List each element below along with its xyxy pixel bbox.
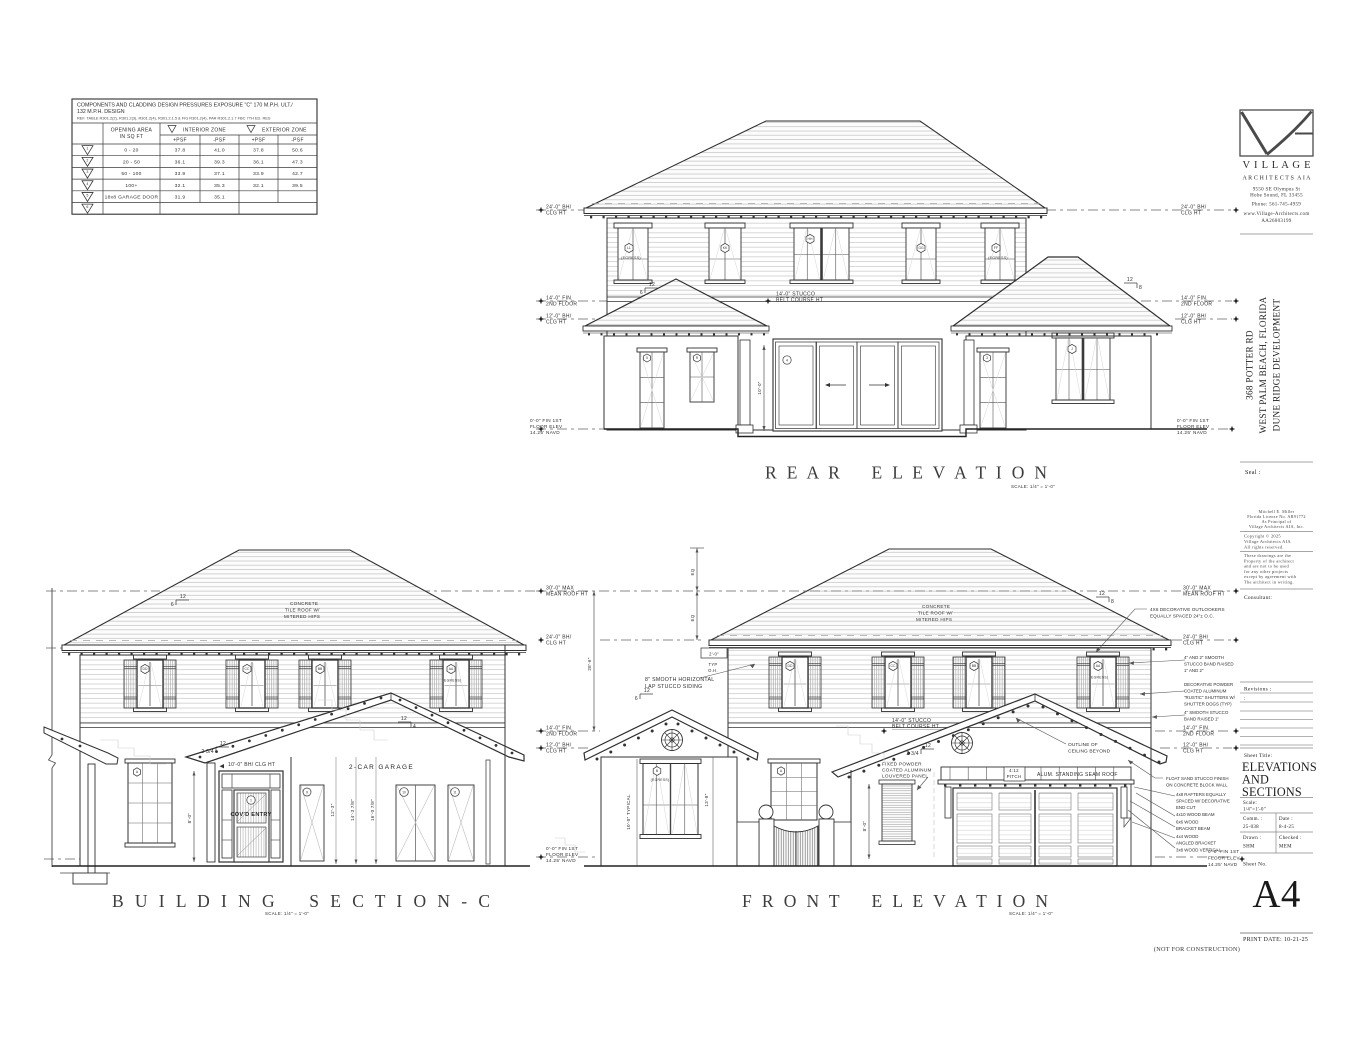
svg-text:CLG HT: CLG HT <box>1183 749 1203 755</box>
svg-text:4: 4 <box>786 358 788 362</box>
svg-text:2'-0": 2'-0" <box>709 652 719 657</box>
svg-text:HH: HH <box>808 237 813 241</box>
svg-text:3: 3 <box>86 170 88 174</box>
svg-text:36.1: 36.1 <box>253 159 264 165</box>
svg-text:CLG HT: CLG HT <box>546 211 566 217</box>
svg-text:14.25' NAVD: 14.25' NAVD <box>1177 430 1207 435</box>
svg-text:CC: CC <box>245 667 250 671</box>
svg-text:PRINT DATE: 10-21-25: PRINT DATE: 10-21-25 <box>1243 937 1308 943</box>
svg-text:0'-0" FIN 1ST: 0'-0" FIN 1ST <box>530 418 562 423</box>
svg-text:0'-0" FIN 1ST: 0'-0" FIN 1ST <box>1177 418 1209 423</box>
svg-text:Seal :: Seal : <box>1245 469 1261 476</box>
svg-text:2ND FLOOR: 2ND FLOOR <box>546 732 577 738</box>
svg-text:6x6 WOOD: 6x6 WOOD <box>1176 820 1198 825</box>
svg-text:CONCRETE: CONCRETE <box>922 604 950 609</box>
svg-text:32.1: 32.1 <box>175 183 186 189</box>
svg-text:FLOOR ELEV: FLOOR ELEV <box>1177 424 1210 429</box>
svg-text:END CUT: END CUT <box>1176 805 1196 810</box>
svg-text:Village Architects AIA: Village Architects AIA <box>1244 539 1291 544</box>
svg-text:FLOOR ELEV: FLOOR ELEV <box>546 852 579 857</box>
svg-text:FLOOR ELEV: FLOOR ELEV <box>1208 856 1240 861</box>
svg-text:32.1: 32.1 <box>253 183 264 189</box>
svg-text:CLG HT: CLG HT <box>1181 320 1201 326</box>
svg-text:9: 9 <box>306 790 308 794</box>
svg-text:+PSF: +PSF <box>252 137 266 143</box>
svg-text:Phone: 561-745-4959: Phone: 561-745-4959 <box>1252 203 1301 208</box>
svg-text:33.9: 33.9 <box>253 171 264 177</box>
svg-text:ALUM. STANDING SEAM ROOF: ALUM. STANDING SEAM ROOF <box>1037 772 1118 778</box>
svg-text:LAP STUCCO SIDING: LAP STUCCO SIDING <box>645 684 702 690</box>
svg-text:STUCCO BAND RAISED: STUCCO BAND RAISED <box>1184 662 1234 667</box>
svg-text:LL: LL <box>627 246 631 250</box>
svg-text:1/4"=1'-0": 1/4"=1'-0" <box>1243 808 1266 813</box>
svg-text:All rights reserved.: All rights reserved. <box>1244 545 1284 550</box>
svg-text:132 M.P.H. DESIGN: 132 M.P.H. DESIGN <box>77 109 125 115</box>
svg-text:0 - 20: 0 - 20 <box>124 148 138 154</box>
svg-text:These drawings are the: These drawings are the <box>1244 553 1291 558</box>
svg-text:35.1: 35.1 <box>214 194 225 200</box>
svg-text:R E A R E L E V A T I O N: R E A R E L E V A T I O N <box>765 463 1047 483</box>
svg-text:and are not to be used: and are not to be used <box>1244 564 1290 569</box>
svg-text:100+: 100+ <box>125 183 137 189</box>
svg-text:EQUALLY SPACED 24”± O.C.: EQUALLY SPACED 24”± O.C. <box>1150 614 1214 619</box>
svg-text:14'-3 7/8": 14'-3 7/8" <box>350 799 355 821</box>
svg-text:WEST PALM BEACH, FLORIDA: WEST PALM BEACH, FLORIDA <box>1258 297 1268 434</box>
svg-text:10: 10 <box>402 790 406 794</box>
svg-text:DUNE RIDGE DEVELOPMENT: DUNE RIDGE DEVELOPMENT <box>1272 299 1282 432</box>
svg-text:Hobe Sound, FL 33455: Hobe Sound, FL 33455 <box>1250 194 1303 199</box>
svg-text:CEILING BEYOND: CEILING BEYOND <box>1068 749 1111 755</box>
svg-text:Sheet No.: Sheet No. <box>1243 862 1267 868</box>
svg-text:BAND RAISED 1": BAND RAISED 1" <box>1184 717 1219 722</box>
svg-text:12: 12 <box>180 594 186 600</box>
svg-text:12: 12 <box>649 282 655 288</box>
svg-text:31.9: 31.9 <box>175 194 186 200</box>
svg-text:DD: DD <box>788 664 793 668</box>
svg-text:12: 12 <box>925 743 931 749</box>
svg-text:50 - 100: 50 - 100 <box>121 171 141 177</box>
svg-text:O.H.: O.H. <box>708 668 718 673</box>
svg-text:2 3/4: 2 3/4 <box>201 749 214 755</box>
svg-text:4x10 WOOD BEAM: 4x10 WOOD BEAM <box>1176 812 1215 817</box>
svg-text:8'-0": 8'-0" <box>862 821 867 832</box>
svg-text:41.0: 41.0 <box>214 148 225 154</box>
svg-text:10'-0": 10'-0" <box>757 381 762 395</box>
svg-text:8'-0": 8'-0" <box>187 813 192 824</box>
svg-text:28'-6": 28'-6" <box>587 657 592 670</box>
svg-text:20 - 50: 20 - 50 <box>123 159 140 165</box>
svg-text:42.7: 42.7 <box>292 171 303 177</box>
svg-text:SCALE: 1/4" = 1'-0": SCALE: 1/4" = 1'-0" <box>265 911 309 916</box>
svg-text:1: 1 <box>250 798 252 802</box>
svg-text:Property of the architect: Property of the architect <box>1244 558 1295 563</box>
svg-text:12: 12 <box>644 688 650 694</box>
svg-text:COV'D ENTRY: COV'D ENTRY <box>230 812 271 818</box>
svg-text:6: 6 <box>171 602 174 608</box>
svg-text:Drawn :: Drawn : <box>1243 836 1261 841</box>
svg-text:18x8 GARAGE DOOR: 18x8 GARAGE DOOR <box>105 194 159 200</box>
svg-text:4" AND 2" SMOOTH: 4" AND 2" SMOOTH <box>1184 655 1224 660</box>
svg-text:13'-8": 13'-8" <box>704 793 709 806</box>
svg-text:CLG HT: CLG HT <box>546 749 566 755</box>
svg-text:4X6 DECORATIVE OUTLOOKERS: 4X6 DECORATIVE OUTLOOKERS <box>1150 607 1225 612</box>
svg-text:MITERED HIPS: MITERED HIPS <box>284 614 320 619</box>
svg-text:CLG HT: CLG HT <box>1181 211 1201 217</box>
svg-text:16'-0 7/8": 16'-0 7/8" <box>370 799 375 821</box>
svg-text:ANGLED BRACKET: ANGLED BRACKET <box>1176 841 1216 846</box>
svg-text:8-4-25: 8-4-25 <box>1279 825 1294 830</box>
svg-text:Consultant:: Consultant: <box>1244 595 1272 601</box>
svg-text:37.8: 37.8 <box>253 148 264 154</box>
svg-text:REF. TABLE R301.2(2), R301.2(3: REF. TABLE R301.2(2), R301.2(3), R301.2(… <box>77 116 271 121</box>
svg-text:TILE ROOF W/: TILE ROOF W/ <box>285 608 320 613</box>
svg-text:5: 5 <box>86 193 88 197</box>
svg-text:BRACKET BEAM: BRACKET BEAM <box>1176 826 1211 831</box>
svg-text:EQ: EQ <box>690 568 695 575</box>
svg-text:for any other projects: for any other projects <box>1244 569 1288 574</box>
svg-text:(EGRESS): (EGRESS) <box>1090 676 1109 680</box>
svg-text:(EGRESS): (EGRESS) <box>988 256 1008 260</box>
svg-text:2 3/4: 2 3/4 <box>906 751 919 757</box>
svg-text:14.25' NAVD: 14.25' NAVD <box>1208 862 1238 867</box>
svg-text:"RUSTIC" SHUTTERS W/: "RUSTIC" SHUTTERS W/ <box>1184 695 1236 700</box>
svg-text:EQ: EQ <box>690 614 695 621</box>
svg-text:25-038: 25-038 <box>1243 825 1259 830</box>
svg-text::: : <box>1244 697 1246 702</box>
svg-text:2ND FLOOR: 2ND FLOOR <box>546 302 577 308</box>
svg-text:J: J <box>1071 347 1073 351</box>
svg-text:6: 6 <box>640 290 643 296</box>
svg-text:SHM: SHM <box>1243 845 1255 850</box>
svg-text:39.3: 39.3 <box>214 159 225 165</box>
svg-text:GG: GG <box>918 246 924 250</box>
svg-text:50.6: 50.6 <box>292 148 303 154</box>
svg-text:1" AND 2": 1" AND 2" <box>1184 668 1204 673</box>
svg-text:12: 12 <box>1127 277 1133 283</box>
svg-text:6: 6 <box>635 696 638 702</box>
svg-text:MEAN ROOF HT: MEAN ROOF HT <box>546 592 588 598</box>
svg-text:3x8 WOOD VERTICAL: 3x8 WOOD VERTICAL <box>1176 848 1222 853</box>
svg-text:4:12: 4:12 <box>1009 768 1019 773</box>
svg-text:1: 1 <box>86 147 88 151</box>
svg-text:0'-0" FIN 1ST: 0'-0" FIN 1ST <box>546 846 578 851</box>
svg-text:10'-0" BH/ CLG HT: 10'-0" BH/ CLG HT <box>228 762 275 768</box>
svg-text:BB: BB <box>318 667 323 671</box>
svg-text:SPACED W/ DECORATIVE: SPACED W/ DECORATIVE <box>1176 799 1230 804</box>
svg-text:Sheet Title:: Sheet Title: <box>1244 753 1273 759</box>
svg-text:Copyright © 2025: Copyright © 2025 <box>1244 534 1281 539</box>
svg-text:AA: AA <box>1096 664 1101 668</box>
svg-text:36.1: 36.1 <box>175 159 186 165</box>
svg-text:CLG HT: CLG HT <box>546 641 566 647</box>
svg-text:AA: AA <box>449 667 454 671</box>
svg-text:LOUVERED PANEL: LOUVERED PANEL <box>882 774 928 779</box>
svg-text:47.3: 47.3 <box>292 159 303 165</box>
svg-text:8: 8 <box>1139 285 1142 291</box>
svg-text:12: 12 <box>220 741 226 747</box>
svg-text:12: 12 <box>1099 591 1105 597</box>
svg-text:MEM: MEM <box>1279 845 1292 850</box>
svg-text:COATED ALUMINUM: COATED ALUMINUM <box>882 768 932 773</box>
svg-text:4x4 WOOD: 4x4 WOOD <box>1176 834 1198 839</box>
svg-text:(EGRESS): (EGRESS) <box>651 778 670 782</box>
svg-text:CC: CC <box>891 664 896 668</box>
svg-text:12: 12 <box>401 716 407 722</box>
svg-text:FF: FF <box>994 246 998 250</box>
svg-text:EXTERIOR ZONE: EXTERIOR ZONE <box>262 128 307 134</box>
svg-text:(EGRESS): (EGRESS) <box>443 679 462 683</box>
svg-text:4x8 RAFTERS EQUALLY: 4x8 RAFTERS EQUALLY <box>1176 792 1226 797</box>
svg-text:2: 2 <box>86 158 88 162</box>
svg-text:6: 6 <box>86 205 88 209</box>
svg-text:OPENING AREA: OPENING AREA <box>111 128 153 134</box>
svg-text:5: 5 <box>646 356 648 360</box>
svg-text:11: 11 <box>453 790 457 794</box>
svg-text:SCALE: 1/4" = 1'-0": SCALE: 1/4" = 1'-0" <box>1011 484 1055 489</box>
svg-text:Date :: Date : <box>1279 817 1293 822</box>
svg-text:12'-3": 12'-3" <box>330 803 335 816</box>
svg-text:BB: BB <box>972 664 977 668</box>
svg-text:www.Village-Architects.com: www.Village-Architects.com <box>1243 212 1309 217</box>
svg-text:BELT COURSE HT: BELT COURSE HT <box>776 298 823 304</box>
svg-text:OUTLINE OF: OUTLINE OF <box>1068 742 1098 748</box>
svg-text:A R C H I T E C T S A I A: A R C H I T E C T S A I A <box>1243 176 1312 182</box>
svg-text:FLOOR ELEV: FLOOR ELEV <box>530 424 563 429</box>
svg-text:COMPONENTS AND CLADDING DES: COMPONENTS AND CLADDING DESIGN PRESSURES… <box>77 103 293 109</box>
svg-text:3: 3 <box>986 356 988 360</box>
svg-text:Scale:: Scale: <box>1243 801 1257 806</box>
svg-text:V I L L A G E: V I L L A G E <box>1243 160 1311 171</box>
svg-text:KK: KK <box>723 246 728 250</box>
svg-text:368 POTTER RD: 368 POTTER RD <box>1245 330 1255 400</box>
svg-text:14.25' NAVD: 14.25' NAVD <box>530 430 560 435</box>
svg-text:-PSF: -PSF <box>213 137 226 143</box>
svg-text:4: 4 <box>413 724 416 730</box>
svg-text:+PSF: +PSF <box>173 137 187 143</box>
svg-text:33.9: 33.9 <box>175 171 186 177</box>
svg-text:4" SMOOTH STUCCO: 4" SMOOTH STUCCO <box>1184 710 1229 715</box>
svg-text:IN SQ FT: IN SQ FT <box>120 134 144 140</box>
svg-text:A4: A4 <box>1252 873 1300 916</box>
svg-text:Checked :: Checked : <box>1279 836 1302 841</box>
svg-text:37.8: 37.8 <box>175 148 186 154</box>
svg-text:Comm. :: Comm. : <box>1243 817 1263 822</box>
svg-text:8: 8 <box>1111 599 1114 605</box>
svg-text:8" SMOOTH HORIZONTAL: 8" SMOOTH HORIZONTAL <box>645 677 714 683</box>
svg-text:INTERIOR ZONE: INTERIOR ZONE <box>183 128 226 134</box>
svg-text:F R O N T E L E V A T I O N: F R O N T E L E V A T I O N <box>742 891 1048 911</box>
svg-text:(EGRESS): (EGRESS) <box>621 256 641 260</box>
svg-text:TILE ROOF W/: TILE ROOF W/ <box>918 611 953 616</box>
svg-text:2ND FLOOR: 2ND FLOOR <box>1181 302 1212 308</box>
svg-text:Revisions :: Revisions : <box>1244 687 1272 693</box>
svg-text:SCALE: 1/4" = 1'-0": SCALE: 1/4" = 1'-0" <box>1009 911 1053 916</box>
svg-text:MITERED HIPS: MITERED HIPS <box>916 617 952 622</box>
svg-text:CLG HT: CLG HT <box>1183 641 1203 647</box>
svg-text:SHUTTER DOGS (TYP): SHUTTER DOGS (TYP) <box>1184 702 1232 707</box>
svg-text:COATED ALUMINUM: COATED ALUMINUM <box>1184 689 1227 694</box>
svg-text:37.1: 37.1 <box>214 171 225 177</box>
svg-text:CONCRETE: CONCRETE <box>290 601 318 606</box>
svg-text:2-CAR GARAGE: 2-CAR GARAGE <box>349 764 414 771</box>
svg-text:-PSF: -PSF <box>291 137 304 143</box>
svg-text:except by agreement with: except by agreement with <box>1244 574 1297 579</box>
svg-text:PITCH: PITCH <box>1007 774 1022 779</box>
svg-text:BELT COURSE HT: BELT COURSE HT <box>892 724 939 730</box>
svg-text:10'-0" TYPICAL: 10'-0" TYPICAL <box>626 794 631 830</box>
svg-text:The architect in writing.: The architect in writing. <box>1244 580 1294 585</box>
svg-text:DECORATIVE POWDER: DECORATIVE POWDER <box>1184 682 1233 687</box>
svg-text:TYP: TYP <box>708 662 717 667</box>
svg-text:B U I L D I N G S E C T I O: B U I L D I N G S E C T I O N - C <box>112 891 490 911</box>
svg-text:35.3: 35.3 <box>214 183 225 189</box>
svg-text:14.25' NAVD: 14.25' NAVD <box>546 858 576 863</box>
svg-text:MEAN ROOF HT: MEAN ROOF HT <box>1183 592 1225 598</box>
svg-text:9550 SE Olympus St: 9550 SE Olympus St <box>1253 188 1301 193</box>
svg-text:FLOAT SAND STUCCO FINISH: FLOAT SAND STUCCO FINISH <box>1166 776 1229 781</box>
svg-text:SECTIONS: SECTIONS <box>1242 785 1302 799</box>
svg-text:DD: DD <box>143 667 148 671</box>
svg-text:4: 4 <box>86 182 88 186</box>
svg-text:AA26003199: AA26003199 <box>1261 219 1291 224</box>
svg-text:39.5: 39.5 <box>292 183 303 189</box>
svg-text:(NOT FOR CONSTRUCTION): (NOT FOR CONSTRUCTION) <box>1154 946 1240 953</box>
svg-text:2ND FLOOR: 2ND FLOOR <box>1183 732 1214 738</box>
svg-text:CLG HT: CLG HT <box>546 320 566 326</box>
svg-text:ON CONCRETE BLOCK WALL: ON CONCRETE BLOCK WALL <box>1166 783 1228 788</box>
